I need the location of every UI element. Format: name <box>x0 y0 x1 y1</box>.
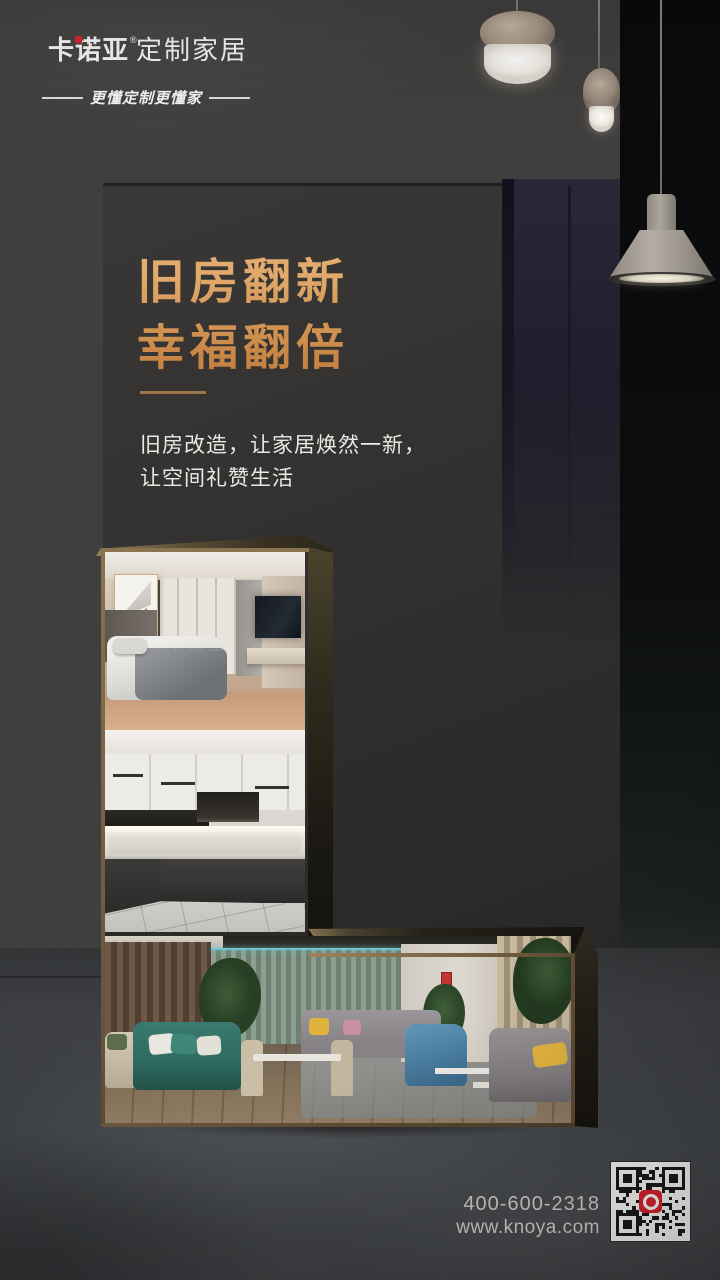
frame-edge-living-top <box>309 953 575 957</box>
navy-curtain-strip <box>502 179 620 649</box>
acorn-lamp-large-glass <box>484 44 551 84</box>
cabinet-handle-slot <box>161 782 195 785</box>
industrial-lamp-neck <box>647 194 676 236</box>
frame-edge-top <box>101 548 309 552</box>
kitchen-range-hood <box>197 792 259 822</box>
pillow-yellow <box>532 1042 569 1069</box>
acorn-lamp-small-cord <box>598 0 600 70</box>
photo-block-floor-shadow <box>92 1124 608 1150</box>
headline: 旧房翻新 幸福翻倍 <box>137 250 497 382</box>
brand-logo-suffix: 定制家居 <box>136 35 248 65</box>
navy-curtain-fold <box>502 179 514 619</box>
frame-edge-living-right <box>571 955 575 1125</box>
dining-table <box>253 1054 341 1061</box>
kitchen-ceiling <box>105 730 305 756</box>
bedroom-blanket <box>135 648 227 700</box>
photo-block-bar-side-face <box>574 929 598 1128</box>
cabinet-handle-slot <box>113 774 143 777</box>
dining-chair <box>331 1040 353 1096</box>
industrial-lamp-cord <box>660 0 662 196</box>
gold-divider <box>140 391 206 394</box>
headline-line2: 幸福翻倍 <box>137 316 497 382</box>
contact-block: 400-600-2318 www.knoya.com <box>388 1192 600 1240</box>
poster: 卡诺亚定制家居 ® 更懂定制更懂家 旧房翻新 幸福翻倍 旧房改造，让家居焕然一新… <box>0 0 720 1280</box>
photo-block-column-side-face <box>308 547 333 953</box>
pillow-green <box>107 1034 127 1050</box>
frame-edge-left <box>101 548 105 1127</box>
dark-right-column <box>620 0 720 1080</box>
industrial-lamp-glow <box>619 274 704 283</box>
navy-curtain-fold-2 <box>568 185 571 605</box>
pillow-white <box>196 1035 221 1056</box>
frame-edge-bottom <box>101 1123 575 1127</box>
pillow-teal <box>170 1033 198 1055</box>
bedroom-pillow <box>113 638 147 654</box>
brand-tagline-row: 更懂定制更懂家 <box>42 87 250 108</box>
body-line1: 旧房改造，让家居焕然一新， <box>140 429 470 462</box>
frame-edge-column-right <box>305 548 309 934</box>
tagline-dash-right <box>209 97 250 99</box>
bedroom-tv <box>255 596 301 638</box>
body-line2: 让空间礼赞生活 <box>140 462 470 495</box>
living-led-strip <box>211 948 401 950</box>
acorn-lamp-small-glass <box>589 106 614 132</box>
kitchen-photo <box>105 730 305 932</box>
living-plant-right <box>513 938 571 1024</box>
living-room-photo <box>105 936 571 1123</box>
qr-center-logo <box>639 1190 662 1213</box>
contact-phone: 400-600-2318 <box>388 1192 600 1216</box>
brand-logo: 卡诺亚定制家居 ® 更懂定制更懂家 <box>42 30 257 110</box>
pillow-yellow <box>309 1018 329 1035</box>
bedroom-photo: 卡诺亚 <box>105 552 305 730</box>
headline-line1: 旧房翻新 <box>137 250 497 316</box>
living-blue-armchair <box>405 1024 467 1086</box>
brand-logo-main: 卡诺亚 <box>48 35 129 65</box>
contact-website: www.knoya.com <box>388 1216 600 1240</box>
tagline-dash-left <box>42 97 83 99</box>
qr-module <box>682 1233 685 1236</box>
bedroom-tv-cabinet <box>247 648 305 664</box>
photo-watermark: 卡诺亚 <box>167 630 227 655</box>
brand-logo-red-dot-icon <box>75 36 82 43</box>
cabinet-handle-slot <box>255 786 289 789</box>
qr-logo-ring-icon <box>643 1194 659 1210</box>
body-copy: 旧房改造，让家居焕然一新， 让空间礼赞生活 <box>140 429 470 495</box>
living-teal-sofa <box>133 1022 241 1090</box>
dining-chair <box>241 1040 263 1096</box>
living-gray-sofa-right <box>489 1028 571 1102</box>
qr-code <box>611 1162 690 1241</box>
kitchen-backsplash <box>105 826 305 856</box>
brand-tagline: 更懂定制更懂家 <box>90 87 202 108</box>
pillow-pink <box>343 1020 361 1035</box>
registered-mark: ® <box>130 35 137 45</box>
